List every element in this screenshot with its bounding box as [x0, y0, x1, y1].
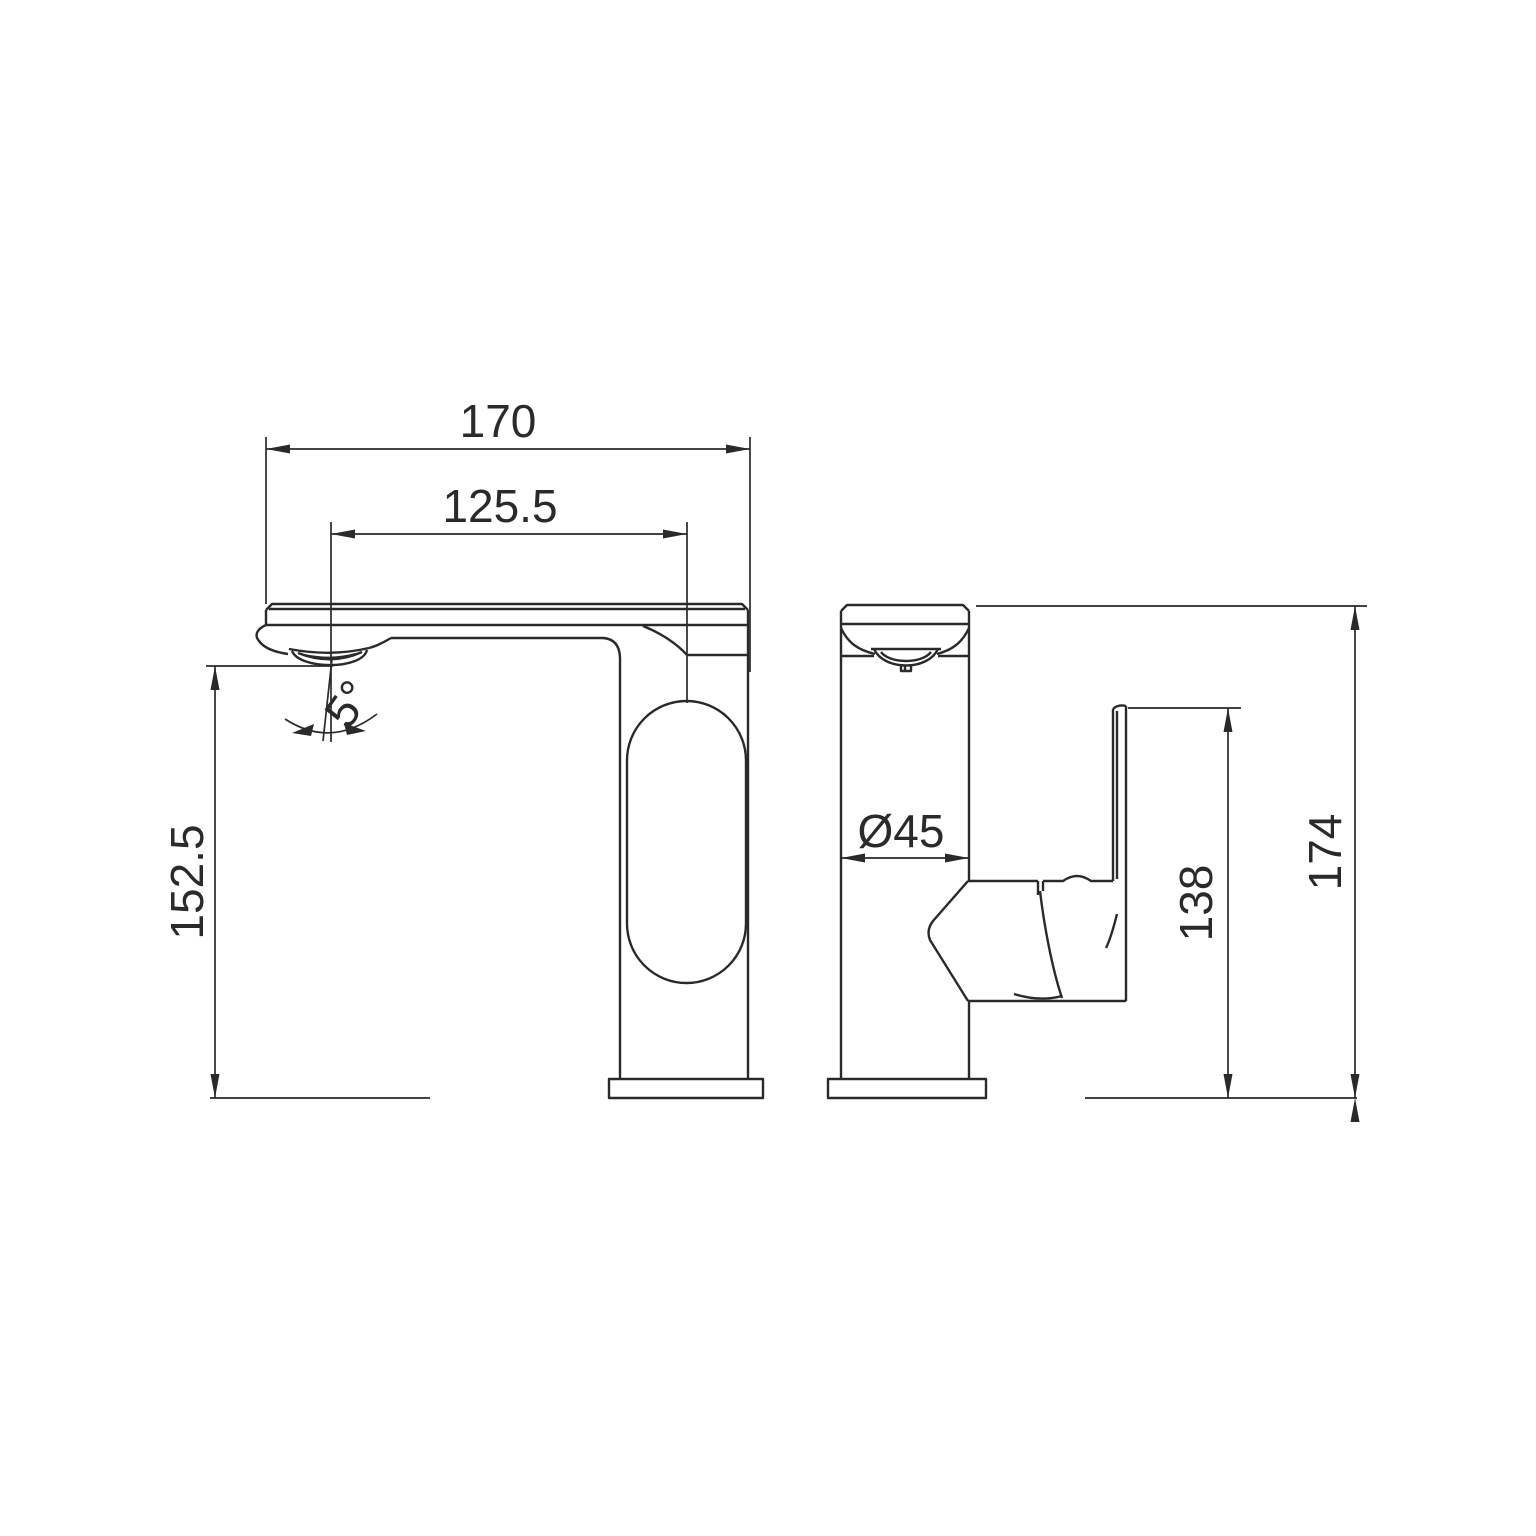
dim-label-handle-top-height: 138 — [1170, 865, 1222, 942]
side-handle-mount-wedge — [929, 881, 968, 1001]
dim-label-overall-height: 174 — [1299, 814, 1351, 891]
front-aerator-lip — [289, 648, 369, 653]
side-cartridge-cap-top — [1043, 876, 1113, 881]
side-spout-curve-left — [841, 628, 875, 654]
front-view: 170 125.5 5° 152.5 — [161, 395, 763, 1098]
arrowhead-174-bottom — [1351, 1074, 1360, 1098]
arrowhead-170-right — [726, 445, 750, 454]
side-lever-blade-detail-curve — [1106, 914, 1117, 948]
side-lever-blade-top — [1113, 705, 1126, 709]
dimension-spout-outlet-height: 152.5 — [161, 666, 430, 1098]
dim-label-front-width: 170 — [460, 395, 537, 447]
dimension-handle-top-height: 138 — [1128, 708, 1241, 1098]
dimension-spout-angle: 5° — [285, 659, 382, 741]
dimension-spout-reach: 125.5 — [331, 480, 687, 742]
dim-label-spout-reach: 125.5 — [442, 480, 557, 532]
dim-label-spout-outlet-height: 152.5 — [161, 824, 213, 939]
side-cartridge-sag-arc — [1014, 994, 1062, 999]
arrowhead-125-right — [663, 530, 687, 539]
front-spout-underside-curve — [369, 638, 391, 648]
side-aerator-cup — [874, 649, 938, 666]
arrowhead-170-left — [266, 445, 290, 454]
arrowhead-174-bottom-mirror — [1351, 1098, 1360, 1122]
side-view: Ø45 138 174 — [828, 605, 1367, 1122]
front-spout-fairing-curve — [643, 626, 687, 655]
arrowhead-138-bottom — [1224, 1074, 1233, 1098]
side-base-plate — [828, 1079, 986, 1098]
dimension-body-diameter: Ø45 — [841, 805, 969, 863]
arrowhead-152-top — [211, 666, 220, 690]
side-cartridge-slant-curve — [1040, 891, 1062, 998]
technical-drawing-canvas: 170 125.5 5° 152.5 — [0, 0, 1536, 1536]
dim-label-body-diameter: Ø45 — [858, 805, 945, 857]
front-base-plate — [609, 1079, 763, 1098]
arrowhead-125-left — [331, 530, 355, 539]
arrowhead-45-right — [945, 854, 969, 863]
side-aerator-inner-arc — [881, 652, 931, 661]
arrowhead-152-bottom — [211, 1074, 220, 1098]
front-body-capsule-cutout — [627, 701, 746, 983]
front-spout-body-fillet — [603, 638, 620, 657]
side-spout-curve-right — [937, 628, 969, 654]
arrowhead-138-top — [1224, 708, 1233, 732]
dimension-overall-height: 174 — [976, 606, 1367, 1122]
side-cap-top — [841, 605, 969, 611]
front-spout-scroll — [257, 625, 288, 654]
arrowhead-174-top — [1351, 606, 1360, 630]
